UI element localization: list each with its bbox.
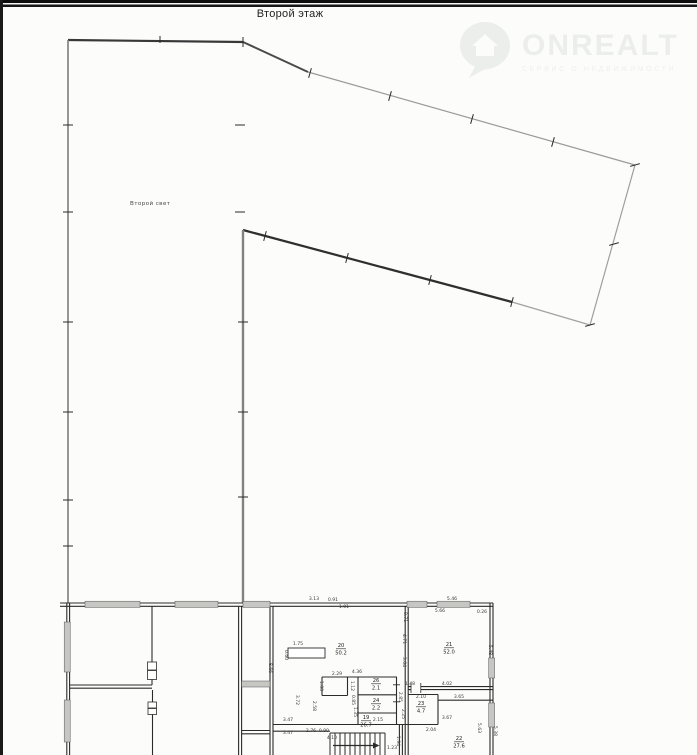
dimension-label: 4.10: [327, 735, 337, 741]
dimension-label: 1.00: [318, 681, 324, 691]
dimension-label: 3.65: [454, 694, 464, 700]
dimension-label: 1.48: [405, 681, 415, 687]
room-number: 24: [373, 698, 380, 704]
dimension-label: 0.26: [477, 609, 487, 615]
dimension-label: 3.47: [283, 717, 293, 723]
dimension-label: 2.85: [397, 692, 403, 702]
room-area: 52.0: [443, 650, 455, 656]
room-number: 26: [373, 678, 380, 684]
dimension-label: 2.15: [373, 717, 383, 723]
stairs-direction-arrowhead: [373, 743, 380, 749]
room-number: 23: [418, 701, 425, 707]
room-number: 19: [363, 715, 370, 721]
room-area: 2.2: [372, 706, 380, 712]
dimension-label: 1.35: [352, 707, 358, 717]
dimension-label: 0.71: [402, 612, 408, 622]
dimension-label: 4.36: [352, 669, 362, 675]
dimension-label: 5.38: [492, 726, 498, 736]
dimension-label: 3.47: [283, 730, 293, 736]
dimension-label: 2.25: [400, 709, 406, 719]
dimension-label: 1.01: [339, 604, 349, 610]
survey-tick-marks: [63, 36, 640, 546]
dimension-label: 3.72: [294, 695, 300, 705]
room-area: 26.7: [360, 723, 372, 729]
dimension-label: 0.91: [328, 597, 338, 603]
room-number: 20: [338, 643, 345, 649]
dimension-label: 8.66: [267, 663, 273, 673]
dimension-label: 2.76: [306, 728, 316, 734]
floor-plan-svg: Второй свет 3.130.911.015.465.660.260.71…: [0, 0, 697, 755]
dimension-label: 1.12: [349, 681, 355, 691]
dimension-label: 3.67: [442, 715, 452, 721]
dimension-label: 5.66: [435, 608, 445, 614]
room-number: 21: [446, 642, 453, 648]
dimension-label: 2.04: [426, 727, 436, 733]
room-area: 2.1: [372, 686, 380, 692]
fixture-table: [288, 648, 325, 658]
dimension-label: 5.48: [487, 645, 493, 655]
room-number: 22: [456, 736, 463, 742]
double-height-space-label: Второй свет: [130, 200, 171, 207]
dimension-label: 0.85: [350, 695, 356, 705]
room-area: 50.2: [335, 651, 347, 657]
plan-windows: [64, 601, 494, 742]
dimension-label: 5.63: [476, 723, 482, 733]
dimension-label: 4.02: [442, 681, 452, 687]
dimension-label: 2.58: [311, 701, 317, 711]
room-area: 4.7: [417, 709, 425, 715]
stairs: [330, 733, 385, 755]
dimension-label: 0.60: [283, 650, 289, 660]
dimension-label: 3.04: [401, 657, 407, 667]
dimension-label: 2.29: [332, 671, 342, 677]
dimension-label: 4.71: [401, 634, 407, 644]
dimension-label: 5.46: [447, 596, 457, 602]
dimension-label: 3.13: [309, 596, 319, 602]
plan-outline: [68, 40, 635, 603]
dimension-label: 2.10: [416, 694, 426, 700]
scanned-floor-plan-page: Второй этаж ONREALT СЕРВИС О НЕДВИЖИМОСТ…: [0, 0, 697, 755]
label-layer: 3.130.911.015.465.660.260.714.713.045.48…: [267, 596, 498, 751]
dimension-label: 1.75: [293, 641, 303, 647]
dimension-label: 0.90: [319, 728, 329, 734]
dimension-label: 1.94: [395, 736, 401, 746]
room-area: 27.6: [453, 744, 465, 750]
